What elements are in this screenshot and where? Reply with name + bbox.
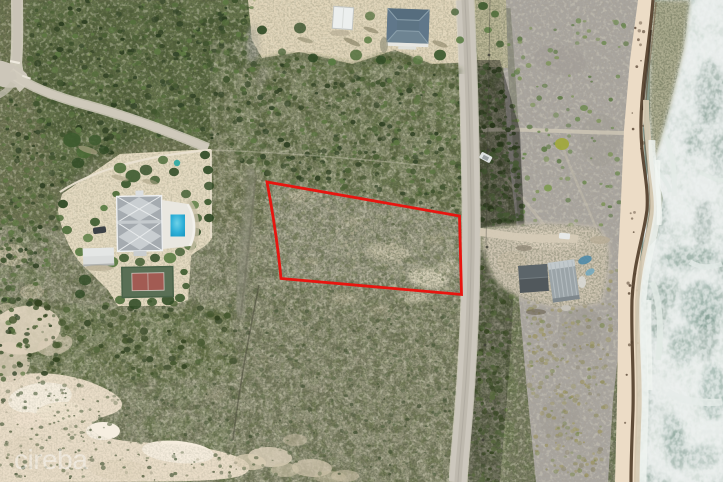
svg-text:cireba: cireba (14, 444, 88, 475)
